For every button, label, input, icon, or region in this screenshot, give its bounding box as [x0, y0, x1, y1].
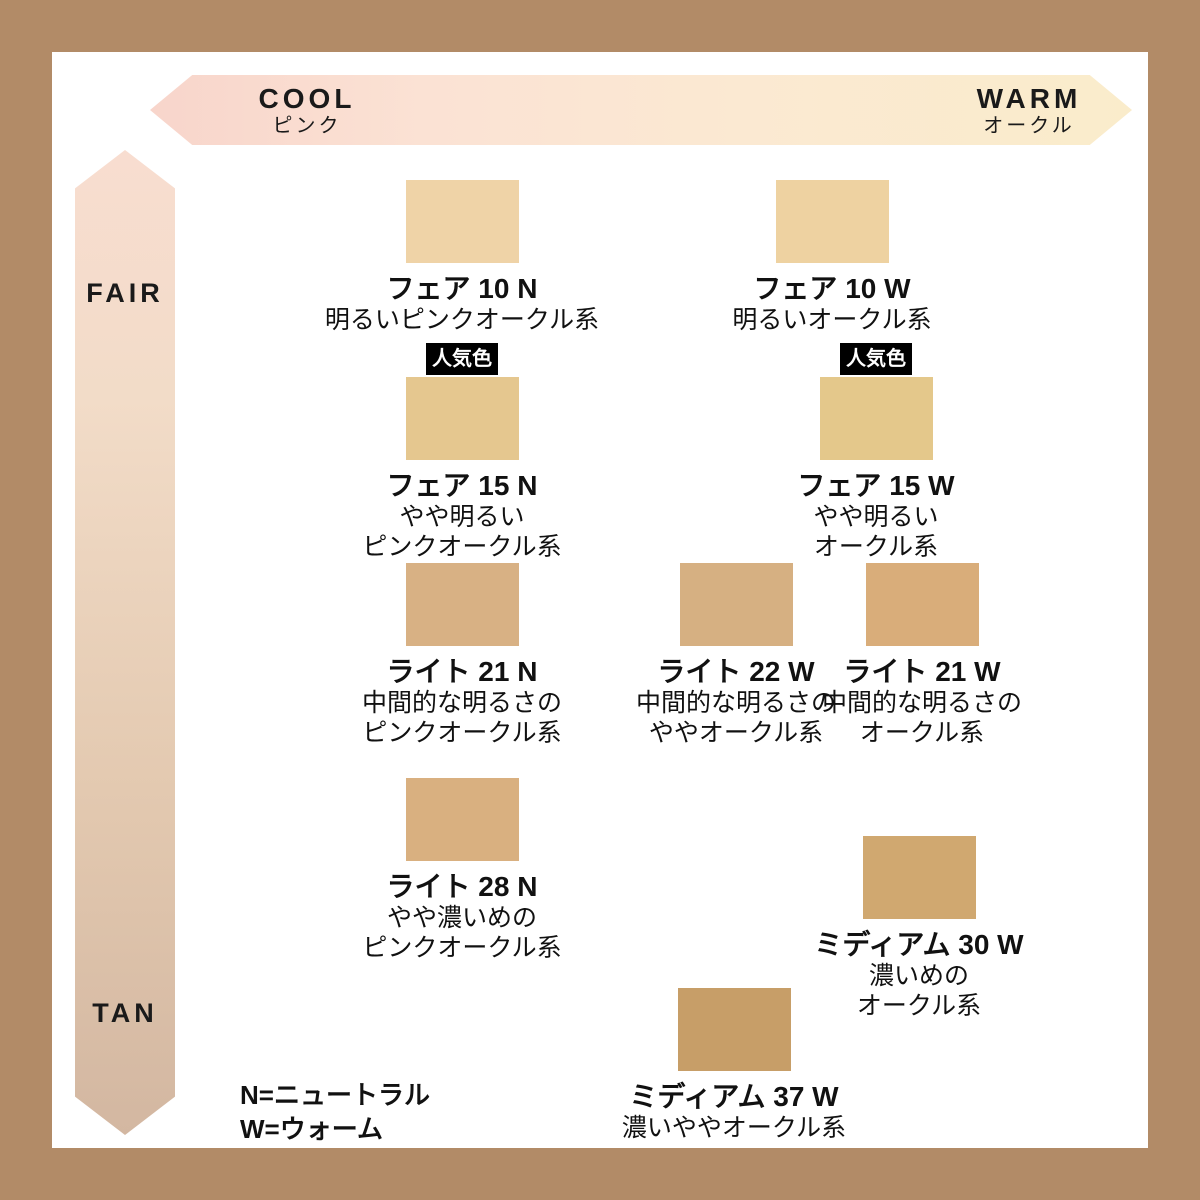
shade-name: ミディアム 37 W — [594, 1080, 874, 1113]
shade-swatch — [406, 180, 519, 263]
fair-label: FAIR — [75, 278, 175, 309]
shade-desc: 明るいピンクオークル系 — [322, 305, 602, 335]
shade-fair-10-n: フェア 10 N 明るいピンクオークル系 — [322, 180, 602, 335]
warm-axis-label-group: WARM オークル — [977, 84, 1082, 138]
shade-light-21-n: ライト 21 N 中間的な明るさのピンクオークル系 — [322, 563, 602, 748]
shade-light-28-n: ライト 28 N やや濃いめのピンクオークル系 — [322, 778, 602, 963]
shade-fair-15-w: 人気色 フェア 15 W やや明るいオークル系 — [736, 377, 1016, 562]
cool-axis-label-group: COOL ピンク — [259, 84, 356, 138]
shade-desc: やや明るいピンクオークル系 — [322, 502, 602, 562]
shade-fair-10-w: フェア 10 W 明るいオークル系 — [692, 180, 972, 335]
shade-chart: COOL ピンク WARM オークル FAIR TAN フェア 10 N 明るい… — [0, 0, 1200, 1200]
warm-label: WARM — [977, 84, 1082, 114]
shade-desc: やや濃いめのピンクオークル系 — [322, 903, 602, 963]
shade-swatch — [866, 563, 979, 646]
shade-fair-15-n: 人気色 フェア 15 N やや明るいピンクオークル系 — [322, 377, 602, 562]
shade-medium-37-w: ミディアム 37 W 濃いややオークル系 — [594, 988, 874, 1143]
shade-desc: やや明るいオークル系 — [736, 502, 1016, 562]
popular-badge: 人気色 — [426, 343, 498, 375]
legend-line-n: N=ニュートラル — [240, 1078, 430, 1112]
shade-name: フェア 10 W — [692, 272, 972, 305]
shade-swatch — [680, 563, 793, 646]
shade-desc: 濃いややオークル系 — [594, 1113, 874, 1143]
tan-label: TAN — [75, 998, 175, 1029]
shade-name: ライト 21 W — [782, 655, 1062, 688]
shade-swatch — [678, 988, 791, 1071]
shade-desc: 明るいオークル系 — [692, 305, 972, 335]
shade-swatch — [406, 778, 519, 861]
shade-swatch — [863, 836, 976, 919]
shade-name: ライト 28 N — [322, 870, 602, 903]
shade-swatch — [776, 180, 889, 263]
shade-swatch — [406, 377, 519, 460]
warm-sublabel: オークル — [977, 114, 1082, 138]
shade-name: フェア 15 N — [322, 469, 602, 502]
shade-swatch — [820, 377, 933, 460]
shade-desc: 中間的な明るさのオークル系 — [782, 688, 1062, 748]
cool-label: COOL — [259, 84, 356, 114]
shade-light-21-w: ライト 21 W 中間的な明るさのオークル系 — [782, 563, 1062, 748]
shade-name: フェア 15 W — [736, 469, 1016, 502]
legend-line-w: W=ウォーム — [240, 1112, 430, 1146]
shade-name: ライト 21 N — [322, 655, 602, 688]
shade-swatch — [406, 563, 519, 646]
cool-sublabel: ピンク — [259, 114, 356, 138]
legend: N=ニュートラル W=ウォーム — [240, 1078, 430, 1146]
shade-desc: 中間的な明るさのピンクオークル系 — [322, 688, 602, 748]
shade-name: フェア 10 N — [322, 272, 602, 305]
shade-name: ミディアム 30 W — [779, 928, 1059, 961]
popular-badge: 人気色 — [840, 343, 912, 375]
